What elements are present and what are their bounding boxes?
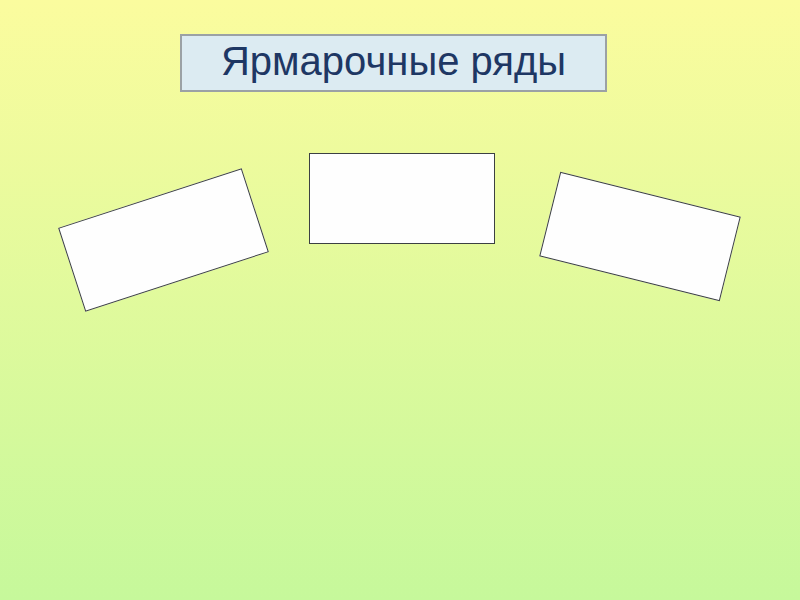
fair-stall-card-left[interactable]: [58, 168, 269, 311]
slide-title: Ярмарочные ряды: [221, 41, 566, 85]
fair-stall-card-middle[interactable]: [309, 153, 495, 244]
slide: Ярмарочные ряды: [0, 0, 800, 600]
slide-title-box: Ярмарочные ряды: [180, 34, 607, 92]
fair-stall-card-right[interactable]: [539, 172, 741, 301]
